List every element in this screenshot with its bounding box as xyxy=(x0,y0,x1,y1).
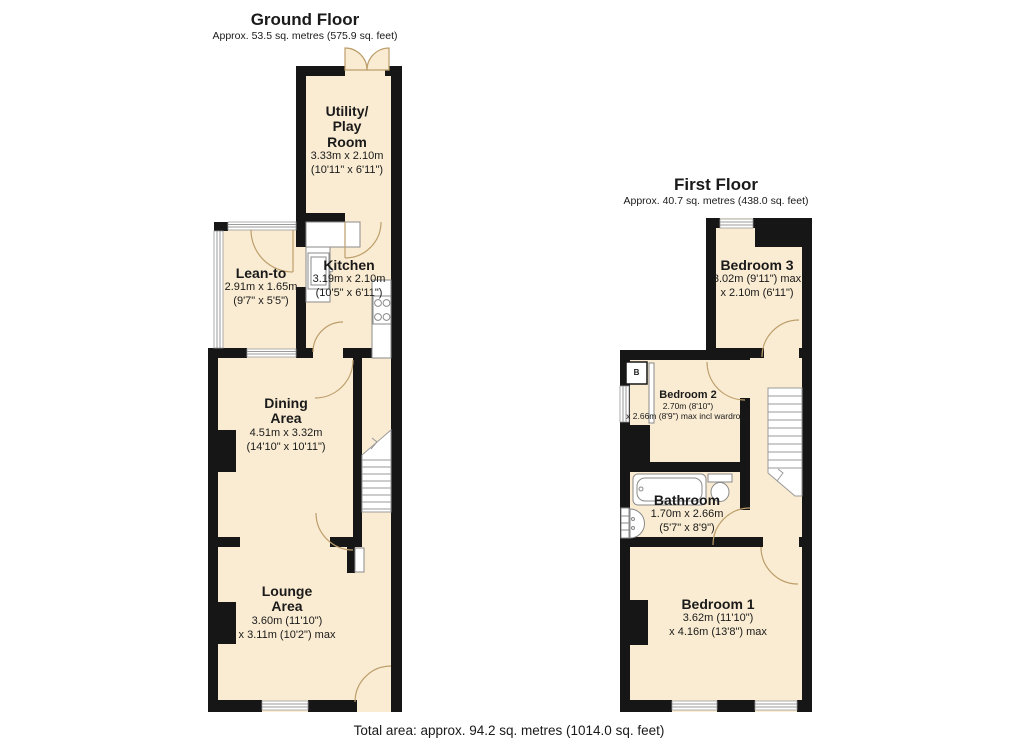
room-label-bathroom: Bathroom 1.70m x 2.66m (5'7" x 8'9") xyxy=(651,493,724,536)
stair-door-leaf xyxy=(355,548,364,572)
first-floor-subtitle: Approx. 40.7 sq. metres (438.0 sq. feet) xyxy=(623,195,808,208)
room-label-kitchen: Kitchen 3.19m x 2.10m (10'5" x 6'11") xyxy=(313,258,386,301)
ground-floor-subtitle: Approx. 53.5 sq. metres (575.9 sq. feet) xyxy=(212,30,397,43)
room-label-leanto: Lean-to 2.91m x 1.65m (9'7" x 5'5") xyxy=(225,266,298,309)
first-floor-title: First Floor xyxy=(623,175,808,195)
towel-rail-icon xyxy=(621,508,629,538)
boiler-label: B xyxy=(634,369,640,377)
leanto-bottom-window xyxy=(247,349,296,357)
room-label-bedroom2: Bedroom 2 2.70m (8'10") x 2.66m (8'9") m… xyxy=(626,389,750,421)
room-label-bedroom1: Bedroom 1 3.62m (11'10") x 4.16m (13'8")… xyxy=(669,597,767,640)
ground-floor-title: Ground Floor xyxy=(212,10,397,30)
leanto-top-glazing xyxy=(228,222,296,230)
bedroom3-window xyxy=(720,219,753,228)
room-label-utility: Utility/ Play Room 3.33m x 2.10m (10'11"… xyxy=(311,104,384,178)
utility-french-doors xyxy=(345,48,389,70)
room-label-bedroom3: Bedroom 3 3.02m (9'11") max x 2.10m (6'1… xyxy=(713,258,801,301)
lounge-window xyxy=(262,701,308,710)
bedroom1-window-left xyxy=(672,701,717,710)
first-floor-title-block: First Floor Approx. 40.7 sq. metres (438… xyxy=(623,175,808,208)
bedroom1-window-right xyxy=(755,701,797,710)
ground-floor-title-block: Ground Floor Approx. 53.5 sq. metres (57… xyxy=(212,10,397,43)
floorplan-page: Ground Floor Approx. 53.5 sq. metres (57… xyxy=(0,0,1024,744)
gf-leanto-kitchen-doorway xyxy=(296,247,306,287)
total-area-text: Total area: approx. 94.2 sq. metres (101… xyxy=(354,723,665,739)
room-label-dining: Dining Area 4.51m x 3.32m (14'10" x 10'1… xyxy=(246,396,325,454)
room-label-lounge: Lounge Area 3.60m (11'10") x 3.11m (10'2… xyxy=(239,584,336,642)
leanto-side-window xyxy=(214,231,223,348)
floorplan-drawing xyxy=(0,0,1024,744)
